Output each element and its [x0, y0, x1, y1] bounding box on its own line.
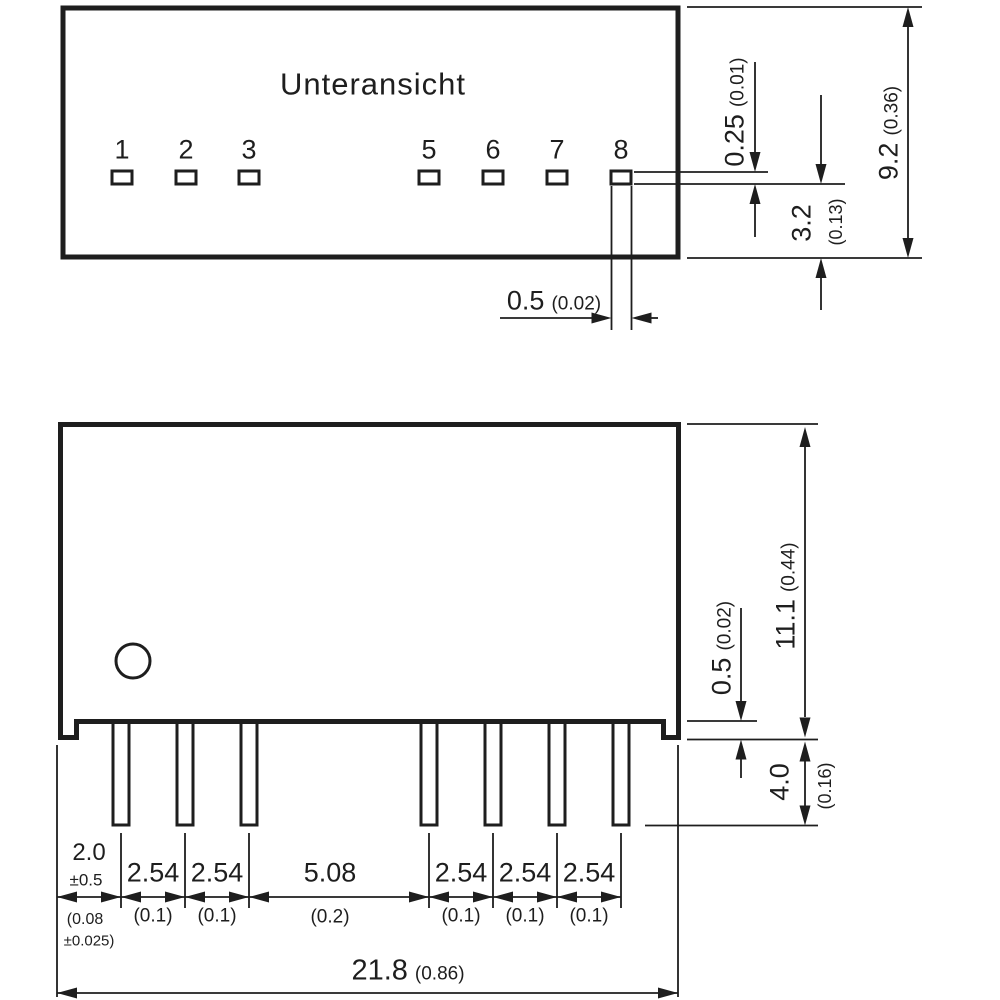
dim-total-width-mm: 21.8: [351, 957, 407, 986]
pin-number-6: 6: [485, 137, 500, 164]
pin-number-8: 8: [613, 137, 628, 164]
dim-pin-row-offset-mm: 3.2: [789, 204, 816, 242]
dim-pin-row-offset-in: (0.13): [827, 198, 845, 245]
arrowhead: [632, 313, 652, 324]
arrowhead: [816, 164, 827, 184]
pin-pad-1: [112, 171, 132, 184]
arrowhead: [185, 892, 205, 903]
arrowhead: [903, 7, 914, 27]
arrowhead: [249, 892, 269, 903]
pin-pad-7: [547, 171, 567, 184]
dim-body-depth-mm: 9.2: [876, 143, 903, 181]
arrowhead: [601, 892, 621, 903]
arrowhead: [229, 892, 249, 903]
dim-body-height: 11.1 (0.44): [773, 542, 800, 649]
pin-lead-6: [485, 722, 501, 825]
dim-pad-width-mm: 0.5: [507, 288, 545, 315]
pin-pad-2: [176, 171, 196, 184]
arrowhead: [429, 892, 449, 903]
dim-pin-thickness-mm: 0.25: [722, 114, 749, 167]
dim-pitch-mm: 2.54: [127, 860, 180, 887]
arrowhead: [800, 718, 811, 738]
dim-edge-to-pin1-tol: ±0.5: [70, 872, 103, 889]
technical-drawing-page: Unteransicht 1 2 3 5 6 7 8 0.5 (0.02) 0.…: [0, 0, 1000, 1000]
pin-lead-7: [549, 722, 565, 825]
dim-pitch-in: (0.1): [441, 907, 480, 926]
dim-pitch-in: (0.1): [133, 907, 172, 926]
dim-body-height-in: (0.44): [780, 542, 799, 592]
arrowhead: [409, 892, 429, 903]
dim-total-width: 21.8 (0.86): [351, 957, 464, 986]
arrowhead: [750, 184, 761, 204]
pin-pad-3: [239, 171, 259, 184]
dim-pitch-mm: 2.54: [435, 860, 488, 887]
arrowhead: [800, 427, 811, 447]
dim-pitch-in: (0.1): [569, 907, 608, 926]
top-view: [63, 7, 922, 330]
arrowhead: [903, 238, 914, 258]
pin-pad-6: [483, 171, 503, 184]
pin-pad-8: [611, 171, 631, 184]
pin-number-2: 2: [178, 137, 193, 164]
arrowhead: [57, 892, 77, 903]
dim-pitch-in: (0.1): [197, 907, 236, 926]
dim-standoff-mm: 0.5: [709, 658, 736, 696]
pin-number-1: 1: [114, 137, 129, 164]
dim-body-depth-in: (0.36): [883, 86, 902, 136]
arrowhead: [57, 988, 77, 999]
dim-edge-to-pin1-in1: (0.08: [67, 912, 103, 928]
dim-pad-width-in: (0.02): [551, 295, 601, 314]
pin-number-5: 5: [421, 137, 436, 164]
dim-pitch-mm: 2.54: [563, 860, 616, 887]
dim-edge-to-pin1-in2: ±0.025): [64, 934, 115, 949]
arrowhead: [101, 892, 121, 903]
pin-lead-1: [113, 722, 129, 825]
pin-lead-8: [613, 722, 629, 825]
pin-lead-5: [421, 722, 437, 825]
dim-gap-in: (0.2): [310, 908, 349, 927]
dim-body-height-mm: 11.1: [773, 599, 800, 650]
view-title: Unteransicht: [280, 69, 466, 100]
top-view-body-outline: [63, 8, 678, 257]
pin-number-7: 7: [549, 137, 564, 164]
arrowhead: [493, 892, 513, 903]
dim-pin-thickness-in: (0.01): [729, 57, 748, 107]
arrowhead: [165, 892, 185, 903]
pin-lead-2: [177, 722, 193, 825]
dim-edge-to-pin1-mm: 2.0: [72, 841, 105, 865]
pin-pad-5: [419, 171, 439, 184]
arrowhead: [473, 892, 493, 903]
pin-number-3: 3: [241, 137, 256, 164]
arrowhead: [537, 892, 557, 903]
arrowhead: [658, 988, 678, 999]
arrowhead: [557, 892, 577, 903]
arrowhead: [816, 258, 827, 278]
pin-lead-3: [241, 722, 257, 825]
arrowhead: [736, 740, 747, 760]
dim-body-depth: 9.2 (0.36): [876, 86, 903, 180]
dim-pitch-in: (0.1): [505, 907, 544, 926]
arrowhead: [736, 701, 747, 721]
arrowhead: [121, 892, 141, 903]
arrowhead: [750, 152, 761, 172]
dim-pin-length-mm: 4.0: [767, 763, 794, 801]
arrowhead: [800, 742, 811, 762]
dim-gap-mm: 5.08: [304, 860, 357, 887]
dim-pitch-mm: 2.54: [499, 860, 552, 887]
dim-pitch-mm: 2.54: [191, 860, 244, 887]
side-view-body-outline: [61, 425, 679, 738]
pin1-marker-circle: [116, 644, 150, 678]
arrowhead: [800, 806, 811, 826]
dim-pin-thickness: 0.25 (0.01): [722, 57, 749, 166]
dim-standoff: 0.5 (0.02): [709, 601, 736, 695]
dim-pad-width: 0.5 (0.02): [507, 288, 601, 315]
dim-standoff-in: (0.02): [716, 601, 735, 651]
dim-total-width-in: (0.86): [415, 965, 465, 984]
dim-pin-length-in: (0.16): [816, 762, 834, 809]
